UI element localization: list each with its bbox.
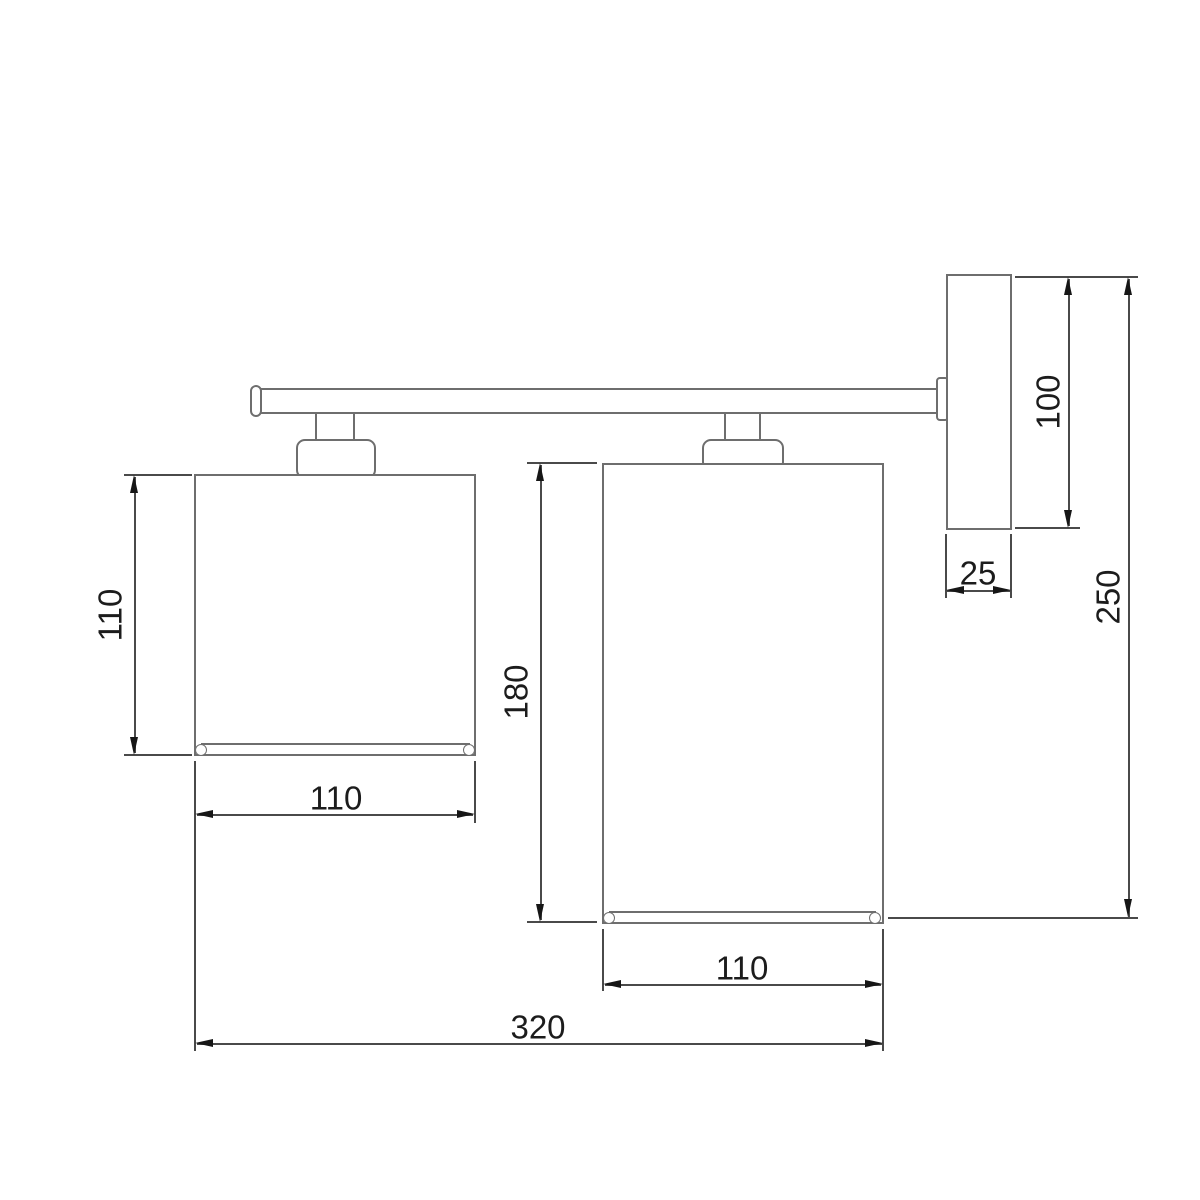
ext-line — [888, 917, 1138, 919]
dim-arrow-up-icon — [130, 475, 138, 493]
dim-arrow-right-icon — [457, 810, 475, 818]
dim-arrow-left-icon — [195, 810, 213, 818]
right-stem-line — [724, 413, 726, 441]
rail-knob — [603, 912, 615, 924]
rail-knob — [869, 912, 881, 924]
wall-plate — [946, 274, 1012, 530]
dim-label-left-shade-height: 110 — [94, 589, 127, 642]
dim-arrow-right-icon — [865, 1039, 883, 1047]
dim-label-total-width: 320 — [510, 1011, 565, 1044]
dim-arrow-left-icon — [603, 980, 621, 988]
dim-line — [1128, 279, 1130, 917]
dim-arrow-down-icon — [130, 737, 138, 755]
dim-arrow-up-icon — [1064, 277, 1072, 295]
dim-label-backplate-depth: 25 — [960, 557, 997, 590]
ext-line — [1015, 276, 1138, 278]
dim-label-total-height: 250 — [1092, 569, 1125, 624]
dim-label-right-shade-height: 180 — [500, 664, 533, 719]
ext-line — [194, 761, 196, 1051]
right-stem-line — [759, 413, 761, 441]
dim-arrow-left-icon — [195, 1039, 213, 1047]
dim-arrow-down-icon — [1124, 899, 1132, 917]
right-shade-outline — [602, 463, 884, 924]
arm-bar — [257, 388, 943, 414]
arm-end-cap — [250, 385, 262, 417]
dim-arrow-down-icon — [1064, 510, 1072, 528]
rail-knob — [463, 744, 475, 756]
dim-arrow-up-icon — [1124, 277, 1132, 295]
dim-line — [1068, 279, 1070, 526]
dim-arrow-right-icon — [865, 980, 883, 988]
dim-label-backplate-height: 100 — [1032, 374, 1065, 429]
left-stem-line — [353, 413, 355, 441]
left-stem-line — [315, 413, 317, 441]
dim-arrow-down-icon — [536, 904, 544, 922]
right-shade-bottom-rail — [609, 911, 876, 913]
rail-knob — [195, 744, 207, 756]
dim-label-right-shade-width: 110 — [716, 952, 769, 985]
left-shade-bottom-rail — [201, 743, 470, 745]
dim-line — [540, 465, 542, 920]
left-shade-outline — [194, 474, 476, 756]
dim-line — [134, 477, 136, 753]
dimension-drawing: 110 110 180 110 320 100 25 250 — [0, 0, 1200, 1200]
left-shade-bracket — [296, 439, 376, 479]
ext-line — [882, 929, 884, 1051]
dim-label-left-shade-width: 110 — [310, 782, 363, 815]
dim-arrow-up-icon — [536, 463, 544, 481]
